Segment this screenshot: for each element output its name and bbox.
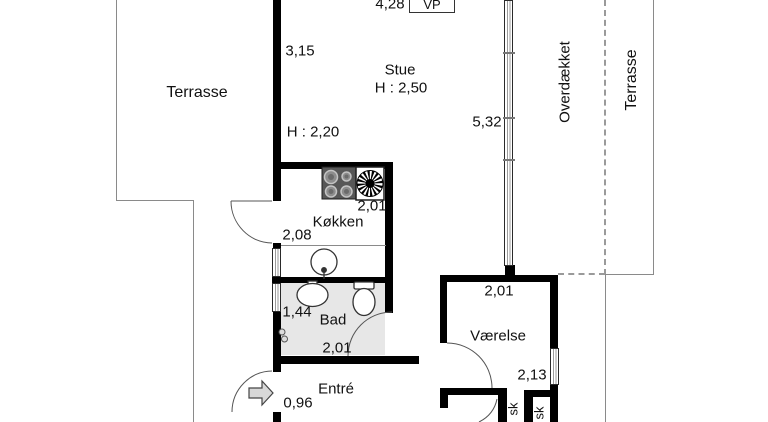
door-swing	[232, 371, 272, 412]
wall	[440, 388, 507, 395]
window-mullion	[503, 159, 515, 161]
terrace-outline-step	[193, 200, 194, 422]
wall	[272, 277, 393, 283]
closet-label: sk	[507, 403, 520, 416]
wall	[273, 0, 281, 201]
room-label-terrasse-left: Terrasse	[166, 85, 227, 101]
right-terrace-bottom	[605, 274, 654, 275]
room-label-stue: Stue	[385, 63, 416, 78]
kitchen-divider-line	[281, 245, 386, 246]
wall	[273, 356, 419, 364]
dim-koekken-width: 2,01	[357, 199, 386, 214]
wall	[440, 388, 448, 408]
room-label-vaerelse: Værelse	[470, 329, 526, 344]
wall	[550, 275, 558, 348]
wall	[273, 412, 281, 422]
window	[550, 348, 559, 385]
room-label-koekken: Køkken	[313, 215, 364, 230]
extractor-fan-icon	[356, 167, 384, 200]
covered-terrace-dashed-bottom	[558, 273, 605, 275]
terrace-outline-left	[116, 0, 117, 201]
room-label-bad: Bad	[320, 313, 347, 328]
terrace-outline-bottom	[116, 200, 194, 201]
dim-vaerelse-width: 2,01	[484, 284, 513, 299]
dim-glass-wall: 5,32	[472, 115, 501, 130]
dim-vaerelse-height: 2,13	[517, 368, 546, 383]
wall	[273, 312, 281, 356]
floor-plan: VP	[0, 0, 768, 422]
window	[272, 283, 281, 312]
dim-koekken-left: 2,08	[282, 228, 311, 243]
glass-wall-window	[504, 0, 513, 266]
door-height-label: H : 2,20	[287, 125, 340, 140]
dim-bad-width: 2,01	[322, 341, 351, 356]
stue-ceiling-height: H : 2,50	[375, 81, 428, 96]
room-label-terrasse-right: Terrasse	[624, 49, 640, 110]
room-label-overdaekket: Overdækket	[558, 41, 573, 123]
wall	[440, 275, 447, 343]
closet-label: sk	[533, 407, 546, 420]
covered-terrace-dashed-line	[604, 0, 606, 275]
wall	[281, 162, 393, 169]
heat-pump-label: VP	[423, 0, 440, 12]
dim-entre-door: 0,96	[283, 396, 312, 411]
window	[272, 248, 281, 277]
stove-icon	[322, 167, 356, 199]
wall	[385, 162, 393, 313]
dim-stue-left: 3,15	[285, 44, 314, 59]
dim-bad-window: 1,44	[282, 305, 311, 320]
room-label-entre: Entré	[318, 382, 354, 397]
heat-pump-box: VP	[409, 0, 455, 13]
door-swing	[479, 399, 497, 422]
door-swing	[447, 343, 492, 388]
kitchen-sink-icon	[311, 249, 337, 279]
entrance-arrow-icon	[249, 381, 273, 405]
right-terrace-outline	[653, 0, 654, 275]
right-terrace-side	[605, 274, 606, 422]
wall	[273, 356, 281, 372]
window-mullion	[503, 117, 515, 119]
window-mullion	[503, 52, 515, 54]
wall	[440, 275, 558, 282]
door-swing	[231, 201, 272, 243]
dim-stue-top: 4,28	[375, 0, 404, 12]
wall	[550, 385, 558, 422]
